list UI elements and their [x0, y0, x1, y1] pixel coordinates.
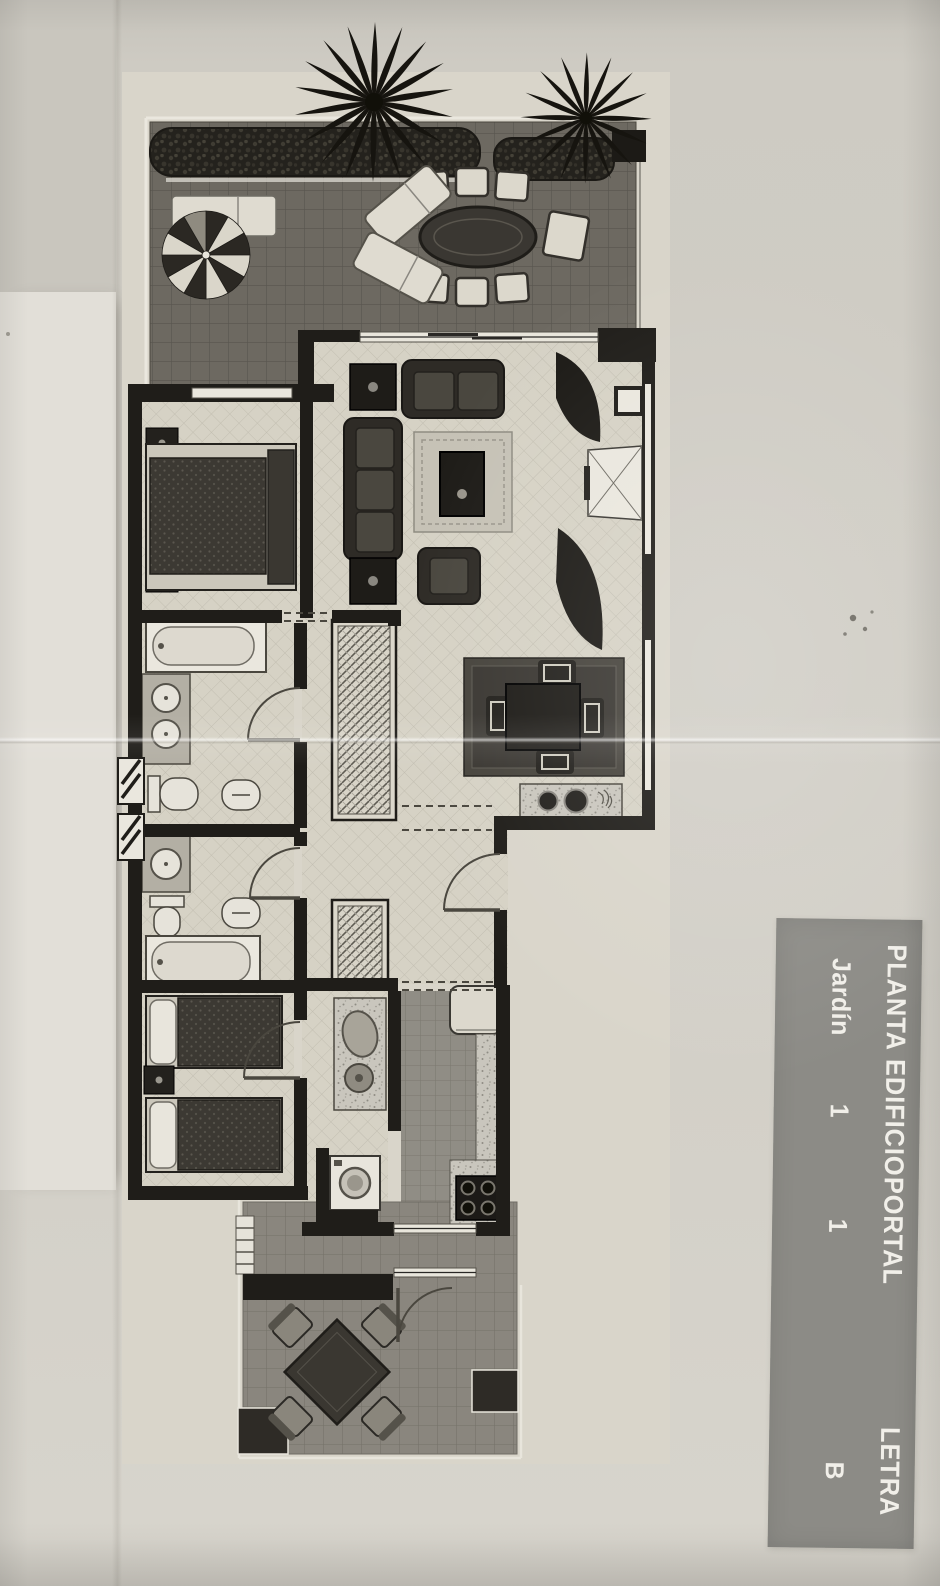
tv-unit [584, 446, 642, 520]
sideboard-counter [520, 784, 622, 818]
hall-wardrobe [332, 900, 388, 986]
coffee-table [414, 432, 512, 532]
title-block-rotated-text: PLANTA Jardín EDIFICIO 1 PORTAL 1 LETRA … [768, 918, 923, 1549]
title-column-planta: PLANTA Jardín [774, 930, 922, 1064]
three-seat-sofa [344, 418, 402, 560]
title-header: EDIFICIO [878, 1059, 910, 1165]
title-header: PLANTA [879, 935, 912, 1060]
master-bedroom [146, 428, 296, 592]
single-bed [146, 996, 282, 1068]
lower-terrace [221, 1199, 521, 1488]
fridge [450, 986, 502, 1034]
parasol-icon [162, 211, 250, 299]
bathtub [146, 620, 266, 672]
side-table [350, 364, 396, 410]
sliding-door [394, 1224, 476, 1233]
louver-window-icon [118, 814, 144, 860]
stove [456, 1176, 500, 1220]
utility-area [330, 998, 386, 1210]
loveseat-sofa [402, 360, 504, 418]
bidet [222, 898, 260, 928]
bidet [222, 780, 260, 810]
terrace-steps [236, 1216, 254, 1274]
nightstand [144, 1066, 174, 1094]
title-value: B [818, 1409, 851, 1532]
title-column-letra: LETRA B [768, 1406, 916, 1536]
toilet [148, 776, 198, 812]
floor-plan-photo: PLANTA Jardín EDIFICIO 1 PORTAL 1 LETRA … [0, 0, 940, 1586]
side-table [350, 558, 396, 604]
title-header: LETRA [873, 1411, 906, 1532]
terrace-wall [243, 1274, 393, 1300]
title-value: 1 [823, 1057, 855, 1165]
double-bed [146, 444, 296, 590]
title-column-portal: PORTAL 1 [771, 1172, 918, 1280]
title-header: PORTAL [876, 1177, 908, 1277]
single-bed [146, 1098, 282, 1172]
terrace-pillar [472, 1370, 518, 1412]
fold-crease [0, 737, 940, 744]
title-value: 1 [821, 1175, 853, 1277]
sliding-door [360, 332, 598, 342]
toilet [150, 896, 184, 937]
title-value: Jardín [824, 933, 857, 1060]
title-column-edificio: EDIFICIO 1 [773, 1054, 921, 1168]
dining-chair [538, 660, 576, 686]
washing-machine [330, 1156, 380, 1210]
armchair [418, 548, 480, 604]
sink-vanity [142, 836, 190, 892]
title-block: PLANTA Jardín EDIFICIO 1 PORTAL 1 LETRA … [768, 918, 923, 1549]
